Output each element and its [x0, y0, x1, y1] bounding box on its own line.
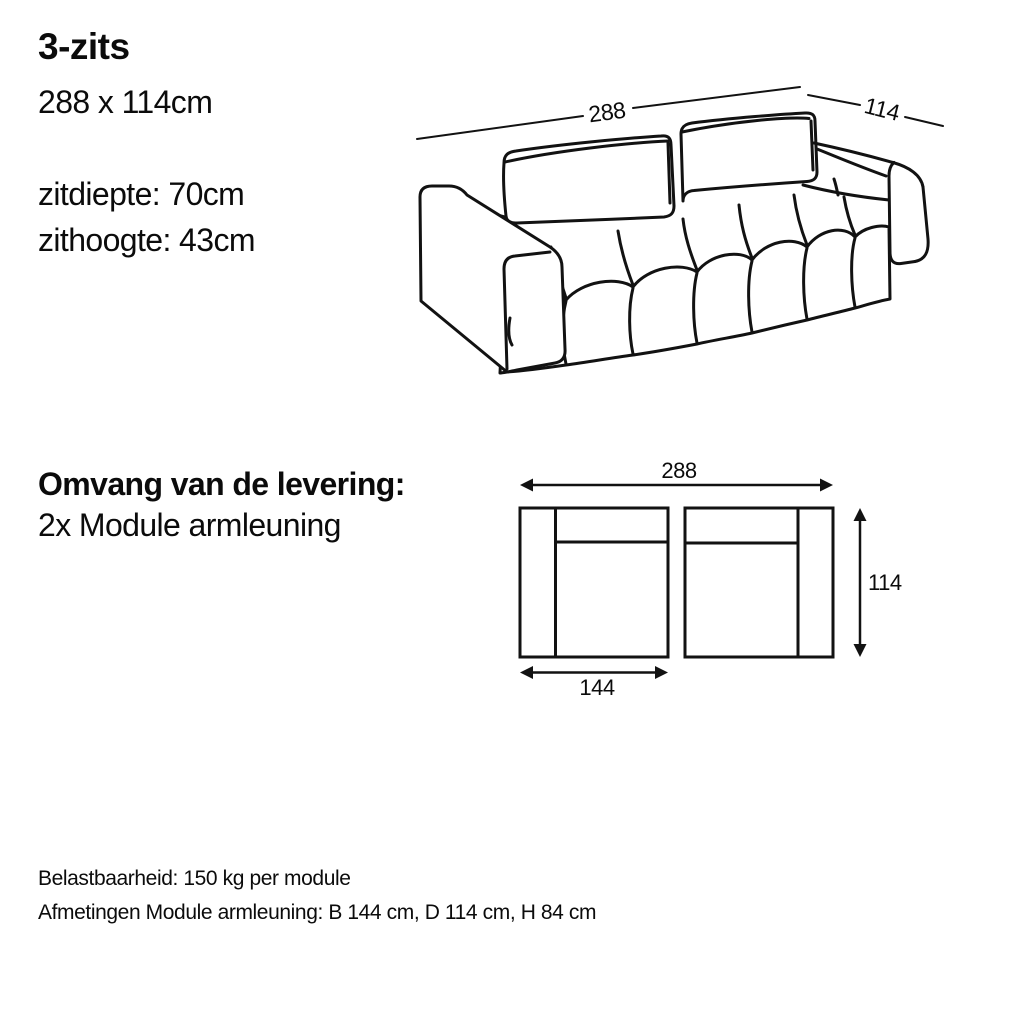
delivery-item: 2x Module armleuning	[38, 507, 341, 544]
cushion-piping	[811, 121, 813, 170]
delivery-heading: Omvang van de levering:	[38, 466, 405, 503]
sofa-width-label: 288	[587, 97, 627, 128]
product-spec-sheet: 3-zits 288 x 114cm zitdiepte: 70cm zitho…	[0, 0, 1024, 1024]
overall-dimensions-text: 288 x 114cm	[38, 84, 212, 121]
load-capacity-text: Belastbaarheid: 150 kg per module	[38, 867, 351, 891]
module-dimensions-text: Afmetingen Module armleuning: B 144 cm, …	[38, 901, 596, 925]
back-cushion-left	[504, 136, 674, 223]
module-total-width-label: 288	[661, 458, 696, 483]
seat-depth-text: zitdiepte: 70cm	[38, 176, 244, 213]
sofa-depth-label: 114	[862, 92, 903, 126]
module-total-width-arrow: 288	[520, 458, 833, 492]
module-right-rect	[685, 508, 833, 657]
cushion-piping	[668, 143, 670, 203]
module-depth-arrow: 114	[854, 508, 902, 657]
module-top-view: 288 114 144	[500, 445, 920, 715]
module-left-rect	[520, 508, 668, 657]
seat-height-text: zithoogte: 43cm	[38, 222, 255, 259]
back-cushion-right	[681, 113, 817, 201]
module-depth-label: 114	[868, 570, 902, 595]
page-title: 3-zits	[38, 26, 130, 68]
sofa-depth-dimension-line: 114	[808, 92, 943, 126]
module-width-label: 144	[579, 675, 614, 700]
sofa-illustration: 288 114	[400, 75, 960, 385]
module-width-arrow: 144	[520, 666, 668, 700]
